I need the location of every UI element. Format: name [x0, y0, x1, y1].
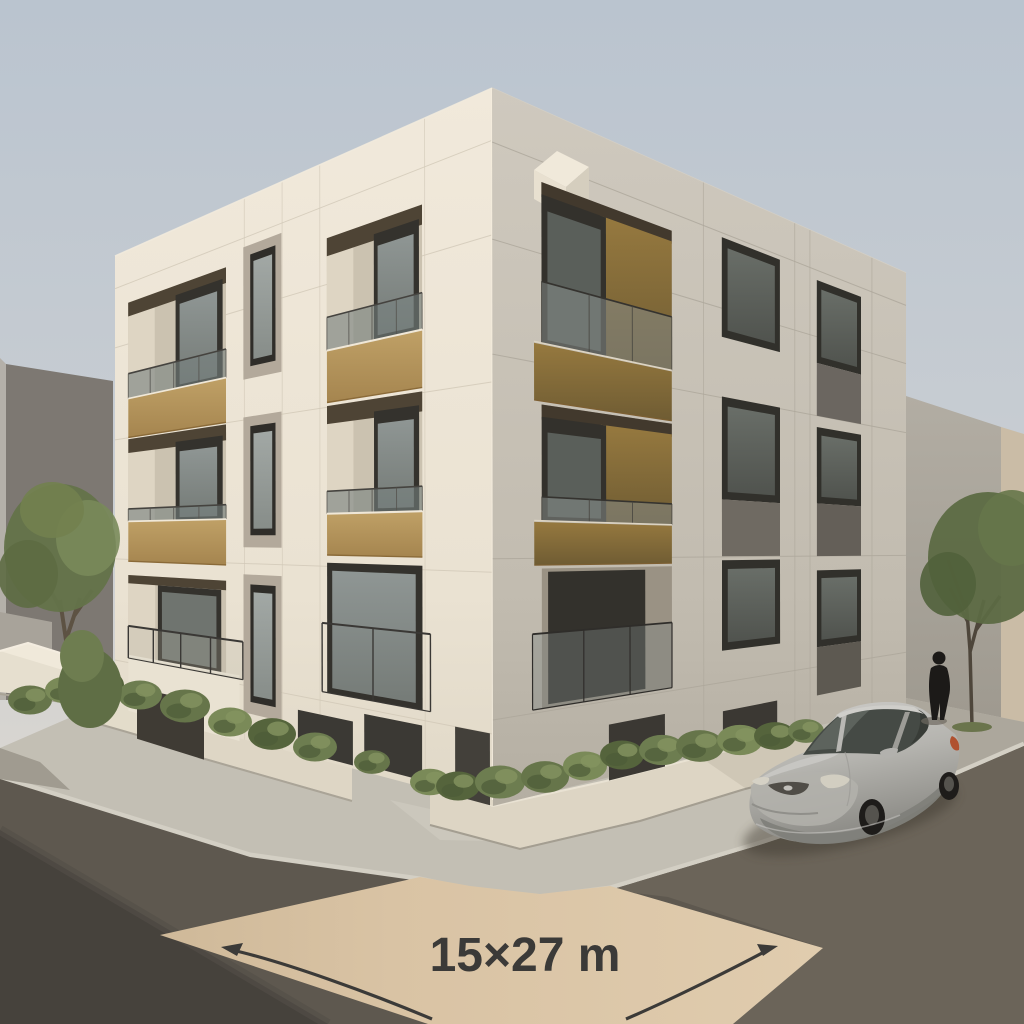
svg-text:15×27 m: 15×27 m [430, 929, 621, 982]
